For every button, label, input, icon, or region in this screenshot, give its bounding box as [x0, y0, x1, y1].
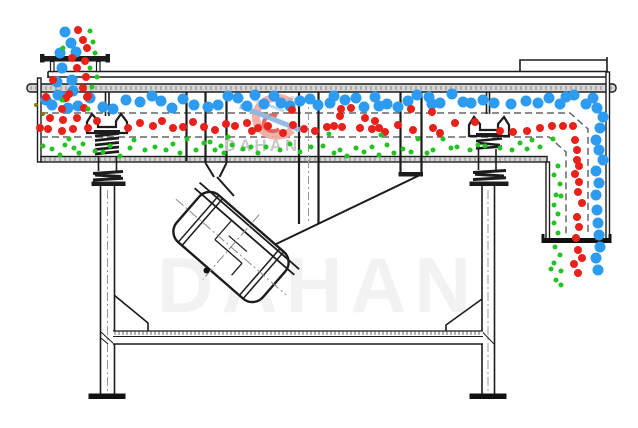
particle-blue — [313, 100, 324, 111]
particle-green — [171, 142, 176, 147]
particle-red — [337, 105, 345, 113]
particle-green — [226, 135, 231, 140]
screen-box-right-wall — [606, 72, 610, 239]
particle-blue — [121, 95, 132, 106]
particle-green — [559, 283, 564, 288]
particle-red — [68, 54, 76, 62]
particle-blue — [478, 95, 489, 106]
particle-green — [441, 137, 446, 142]
particle-red — [575, 162, 583, 170]
particle-green — [194, 148, 199, 153]
particle-red — [158, 117, 166, 125]
particle-green — [553, 245, 558, 250]
particle-red — [548, 122, 556, 130]
particle-blue — [295, 96, 306, 107]
particle-red — [338, 123, 346, 131]
particle-red — [200, 123, 208, 131]
particle-red — [336, 112, 344, 120]
particle-red — [59, 116, 67, 124]
particle-blue — [533, 98, 544, 109]
particle-blue — [592, 103, 603, 114]
particle-green — [554, 193, 559, 198]
particle-blue — [340, 95, 351, 106]
particle-green — [552, 203, 557, 208]
particle-red — [65, 90, 73, 98]
particle-green — [332, 151, 337, 156]
particle-green — [425, 151, 430, 156]
particle-green — [41, 144, 46, 149]
particle-green — [50, 147, 55, 152]
particle-green — [118, 154, 123, 159]
particle-blue — [329, 91, 340, 102]
particle-red — [254, 124, 262, 132]
particle-green — [321, 144, 326, 149]
particle-green — [392, 151, 397, 156]
particle-green — [558, 182, 563, 187]
particle-red — [58, 105, 66, 113]
screen-deck-2-dashed — [41, 137, 566, 236]
particle-green — [455, 145, 460, 150]
particle-blue — [591, 253, 602, 264]
particle-green — [327, 132, 332, 137]
particle-red — [573, 146, 581, 154]
particle-blue — [213, 100, 224, 111]
particle-green — [554, 278, 559, 283]
particle-blue — [593, 265, 604, 276]
particle-blue — [189, 100, 200, 111]
right-foot — [470, 394, 507, 400]
particle-green — [338, 148, 343, 153]
particle-red — [569, 122, 577, 130]
particle-red — [451, 119, 459, 127]
particle-red — [222, 120, 230, 128]
particle-blue — [466, 98, 477, 109]
particle-blue — [594, 230, 605, 241]
particle-green — [264, 145, 269, 150]
particle-green — [202, 141, 207, 146]
particle-red — [279, 129, 287, 137]
particle-red — [136, 119, 144, 127]
particle-green — [88, 29, 93, 34]
particle-green — [416, 137, 421, 142]
particle-green — [309, 145, 314, 150]
particle-blue — [98, 102, 109, 113]
vibrating-screen-diagram: DAHAN — [0, 0, 638, 428]
particle-green — [72, 146, 77, 151]
particle-green — [552, 261, 557, 266]
particle-red — [409, 126, 417, 134]
particle-green — [552, 221, 557, 226]
particle-green — [559, 269, 564, 274]
particle-blue — [156, 96, 167, 107]
particle-blue — [435, 98, 446, 109]
particle-blue — [223, 91, 234, 102]
particle-green — [530, 138, 535, 143]
particle-green — [90, 85, 95, 90]
particle-green — [249, 145, 254, 150]
particle-red — [73, 64, 81, 72]
particle-green — [510, 148, 515, 153]
particle-red — [394, 121, 402, 129]
particle-red — [574, 269, 582, 277]
particle-red — [231, 122, 239, 130]
particle-green — [219, 144, 224, 149]
particle-red — [169, 124, 177, 132]
particle-green — [370, 145, 375, 150]
particle-green — [556, 212, 561, 217]
particle-red — [347, 104, 355, 112]
particle-blue — [588, 93, 599, 104]
particle-blue — [594, 145, 605, 156]
particle-green — [185, 137, 190, 142]
particle-green — [58, 153, 63, 158]
particle-red — [496, 127, 504, 135]
screen-box-left-wall — [38, 78, 42, 162]
particle-green — [91, 40, 96, 45]
left-leg — [101, 186, 115, 394]
particle-green — [298, 150, 303, 155]
particle-olive — [34, 103, 38, 107]
particle-blue — [569, 90, 580, 101]
particle-blue — [259, 99, 270, 110]
particle-green — [354, 146, 359, 151]
particle-blue — [598, 112, 609, 123]
particle-red — [523, 127, 531, 135]
particle-blue — [351, 93, 362, 104]
particle-blue — [595, 242, 606, 253]
particle-red — [571, 136, 579, 144]
particle-blue — [233, 93, 244, 104]
particle-green — [77, 151, 82, 156]
right-leg — [482, 186, 495, 394]
particle-blue — [591, 135, 602, 146]
particle-red — [361, 114, 369, 122]
particle-green — [208, 140, 213, 145]
particle-red — [578, 254, 586, 262]
particle-green — [256, 151, 261, 156]
particle-red — [83, 44, 91, 52]
particle-green — [379, 133, 384, 138]
particle-green — [559, 194, 564, 199]
particle-green — [385, 143, 390, 148]
particle-green — [61, 46, 66, 51]
particle-green — [377, 153, 382, 158]
particle-green — [345, 154, 350, 159]
top-cover — [48, 57, 608, 78]
particle-red — [74, 26, 82, 34]
particle-green — [551, 137, 556, 142]
particle-green — [476, 143, 481, 148]
particle-green — [538, 145, 543, 150]
particle-blue — [60, 27, 71, 38]
particle-green — [362, 150, 367, 155]
particle-red — [300, 125, 308, 133]
particle-red — [311, 127, 319, 135]
particle-green — [153, 145, 158, 150]
particle-green — [556, 231, 561, 236]
particle-red — [371, 117, 379, 125]
particle-red — [471, 118, 479, 126]
particle-red — [574, 188, 582, 196]
particle-red — [79, 84, 87, 92]
particle-blue — [506, 99, 517, 110]
motor-mount-right-arm — [272, 175, 420, 246]
discharge-end-lip — [520, 57, 607, 72]
particle-green — [449, 146, 454, 151]
particle-red — [46, 114, 54, 122]
particle-green — [81, 142, 86, 147]
particle-green — [108, 144, 113, 149]
particle-blue — [447, 89, 458, 100]
particle-blue — [167, 103, 178, 114]
particle-red — [69, 125, 77, 133]
particle-red — [407, 105, 415, 113]
particle-green — [88, 66, 93, 71]
left-brace — [114, 295, 148, 331]
particle-red — [368, 125, 376, 133]
particle-green — [556, 164, 561, 169]
particle-green — [60, 98, 65, 103]
particle-green — [101, 150, 106, 155]
particle-red — [572, 234, 580, 242]
particle-red — [58, 127, 66, 135]
particle-blue — [595, 123, 606, 134]
diagram-canvas: DAHAN — [0, 0, 638, 428]
motor-mount-left-arm — [217, 177, 234, 196]
particle-green — [525, 147, 530, 152]
particle-green — [498, 146, 503, 151]
particle-green — [549, 267, 554, 272]
left-foot — [89, 394, 126, 400]
particle-green — [518, 141, 523, 146]
particle-green — [552, 173, 557, 178]
particle-red — [36, 124, 44, 132]
particle-green — [230, 143, 235, 148]
particle-red — [574, 246, 582, 254]
particle-green — [132, 138, 137, 143]
particle-green — [86, 107, 91, 112]
particle-green — [128, 146, 133, 151]
particle-blue — [598, 155, 609, 166]
particle-green — [483, 144, 488, 149]
particle-red — [243, 119, 251, 127]
particle-red — [84, 124, 92, 132]
particle-blue — [382, 99, 393, 110]
particle-green — [67, 137, 72, 142]
base-beam — [113, 331, 483, 344]
frame-rail — [27, 84, 616, 92]
particle-blue — [592, 205, 603, 216]
particle-blue — [250, 90, 261, 101]
particle-red — [330, 122, 338, 130]
particle-red — [559, 122, 567, 130]
particle-red — [149, 122, 157, 130]
particle-red — [79, 36, 87, 44]
particle-green — [241, 147, 246, 152]
particle-red — [356, 124, 364, 132]
particle-green — [431, 148, 436, 153]
particle-blue — [178, 94, 189, 105]
particle-red — [44, 125, 52, 133]
particle-blue — [108, 104, 119, 115]
particle-green — [63, 143, 68, 148]
particle-green — [178, 151, 183, 156]
particle-green — [93, 149, 98, 154]
particle-red — [509, 128, 517, 136]
particle-red — [429, 124, 437, 132]
particle-red — [575, 223, 583, 231]
particle-red — [82, 73, 90, 81]
particle-green — [164, 148, 169, 153]
particle-red — [323, 123, 331, 131]
particle-blue — [544, 93, 555, 104]
particle-red — [536, 124, 544, 132]
particle-blue — [359, 102, 370, 113]
motor-bolt — [204, 268, 210, 274]
particle-red — [575, 178, 583, 186]
particle-green — [401, 147, 406, 152]
particle-blue — [57, 63, 68, 74]
particle-green — [95, 75, 100, 80]
particle-green — [468, 148, 473, 153]
particle-red — [189, 118, 197, 126]
particle-red — [289, 121, 297, 129]
particle-green — [222, 151, 227, 156]
particle-red — [428, 108, 436, 116]
particle-green — [213, 148, 218, 153]
particle-red — [436, 129, 444, 137]
particle-red — [264, 122, 272, 130]
particle-green — [93, 51, 98, 56]
particle-blue — [594, 178, 605, 189]
particle-red — [93, 117, 101, 125]
particle-blue — [489, 98, 500, 109]
particle-blue — [591, 166, 602, 177]
particle-red — [49, 76, 57, 84]
particle-red — [179, 123, 187, 131]
particle-red — [578, 199, 586, 207]
particle-green — [409, 150, 414, 155]
particle-red — [42, 93, 50, 101]
particle-blue — [135, 97, 146, 108]
particle-blue — [593, 218, 604, 229]
particle-red — [211, 126, 219, 134]
particle-green — [558, 253, 563, 258]
particle-red — [570, 260, 578, 268]
particle-red — [73, 114, 81, 122]
particle-red — [81, 57, 89, 65]
particle-blue — [47, 100, 58, 111]
particle-blue — [412, 90, 423, 101]
particle-red — [288, 106, 296, 114]
particle-blue — [521, 96, 532, 107]
particle-green — [143, 148, 148, 153]
particle-blue — [67, 75, 78, 86]
particle-red — [83, 93, 91, 101]
particle-blue — [203, 102, 214, 113]
particle-green — [288, 142, 293, 147]
particle-blue — [403, 96, 414, 107]
particle-blue — [242, 101, 253, 112]
particle-olive — [41, 112, 45, 116]
particle-blue — [591, 190, 602, 201]
particle-green — [278, 148, 283, 153]
particle-blue — [393, 102, 404, 113]
particle-red — [573, 213, 581, 221]
particle-red — [571, 170, 579, 178]
particle-red — [124, 124, 132, 132]
